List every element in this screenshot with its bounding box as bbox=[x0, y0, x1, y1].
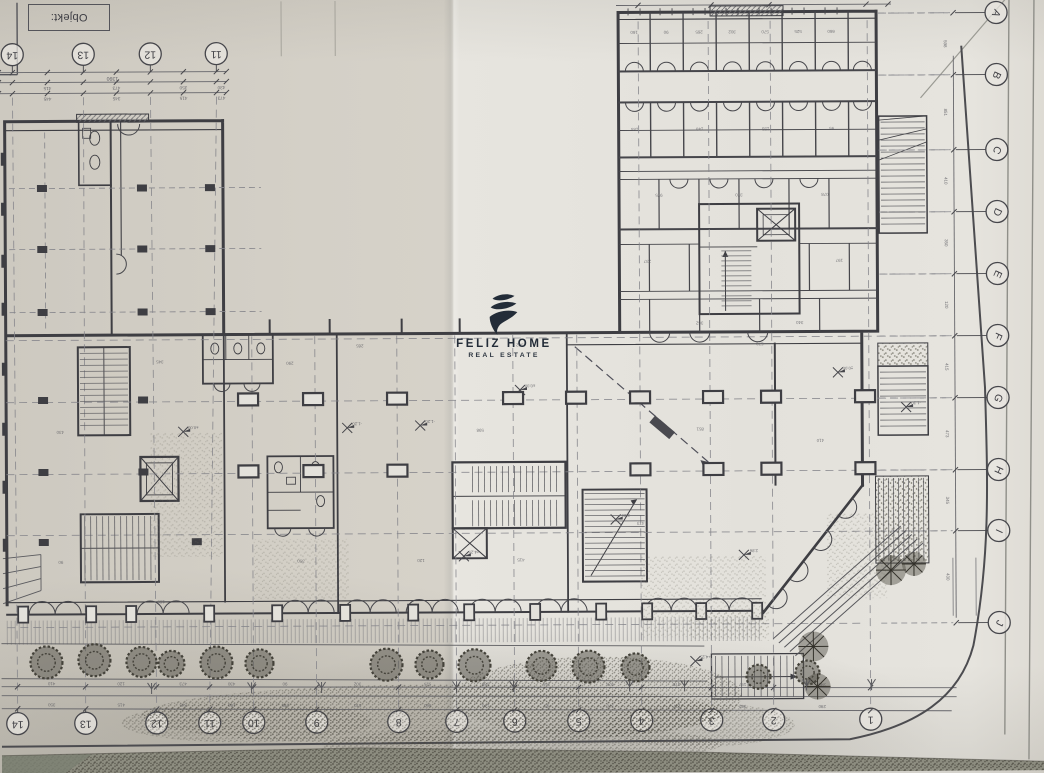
svg-text:237: 237 bbox=[643, 259, 651, 264]
svg-text:120: 120 bbox=[944, 301, 949, 309]
grid-bubble-I: I bbox=[988, 519, 1010, 541]
grid-bubble-J: J bbox=[988, 611, 1010, 633]
grid-bubble-G: G bbox=[987, 386, 1009, 408]
level-marker: ±0.00 bbox=[833, 366, 853, 378]
svg-text:197: 197 bbox=[835, 258, 843, 263]
svg-text:11: 11 bbox=[211, 48, 222, 60]
svg-text:±0.00: ±0.00 bbox=[842, 366, 853, 371]
grid-bubble-13: 13 bbox=[72, 43, 94, 65]
svg-text:473: 473 bbox=[217, 96, 225, 101]
grid-bubble-12: 12 bbox=[139, 43, 161, 65]
svg-text:14: 14 bbox=[6, 49, 18, 61]
svg-text:120: 120 bbox=[417, 558, 425, 563]
svg-text:570: 570 bbox=[761, 29, 769, 34]
palm-tree-symbol bbox=[902, 552, 926, 576]
svg-text:2.86: 2.86 bbox=[749, 548, 758, 553]
svg-text:975: 975 bbox=[655, 193, 663, 198]
level-marker: -1.20 bbox=[342, 421, 362, 433]
grid-bubble-14: 14 bbox=[1, 44, 23, 66]
svg-text:525: 525 bbox=[794, 29, 802, 34]
svg-text:415: 415 bbox=[117, 702, 125, 707]
grid-bubble-D: D bbox=[986, 200, 1008, 222]
svg-text:598: 598 bbox=[476, 428, 484, 433]
svg-text:415: 415 bbox=[179, 96, 187, 101]
svg-text:+4.25: +4.25 bbox=[699, 655, 710, 660]
svg-text:-1.20: -1.20 bbox=[352, 421, 362, 426]
tree-symbol bbox=[126, 647, 156, 677]
svg-text:140: 140 bbox=[695, 127, 703, 132]
svg-text:302: 302 bbox=[728, 29, 736, 34]
svg-text:120: 120 bbox=[117, 681, 125, 686]
svg-text:-1.20: -1.20 bbox=[425, 419, 435, 424]
floor-plan-scan: 141312111413121110987654321ABCDEFGHIJ139… bbox=[0, 0, 1044, 773]
svg-text:851: 851 bbox=[943, 109, 948, 117]
svg-text:160: 160 bbox=[630, 30, 638, 35]
svg-text:410: 410 bbox=[47, 681, 55, 686]
svg-text:430: 430 bbox=[227, 681, 235, 686]
grid-bubble-A: A bbox=[985, 1, 1007, 23]
svg-text:078: 078 bbox=[821, 192, 829, 197]
svg-text:±0.00: ±0.00 bbox=[524, 383, 535, 388]
svg-text:410: 410 bbox=[943, 177, 948, 185]
grid-bubble-11: 11 bbox=[205, 43, 227, 65]
upper-rooms-walls bbox=[618, 7, 878, 332]
svg-text:1: 1 bbox=[868, 714, 874, 726]
svg-text:345: 345 bbox=[112, 96, 120, 101]
tree-symbol bbox=[30, 646, 62, 678]
svg-text:-1.20: -1.20 bbox=[911, 400, 921, 405]
plan-drawing: 141312111413121110987654321ABCDEFGHIJ139… bbox=[0, 0, 1044, 773]
svg-text:362: 362 bbox=[695, 321, 703, 326]
svg-text:14: 14 bbox=[12, 718, 24, 730]
svg-text:410: 410 bbox=[816, 438, 824, 443]
svg-text:430: 430 bbox=[945, 573, 950, 581]
level-marker: +4.25 bbox=[459, 550, 479, 562]
dimension-chains: 1390415473350430445345415473410350120415… bbox=[0, 1, 951, 718]
svg-text:265: 265 bbox=[695, 30, 703, 35]
palm-tree-symbol bbox=[805, 673, 831, 699]
svg-text:90: 90 bbox=[663, 30, 668, 35]
svg-text:13: 13 bbox=[77, 49, 89, 61]
svg-text:197: 197 bbox=[738, 682, 746, 687]
svg-text:95: 95 bbox=[829, 126, 834, 131]
level-marker: 2.86 bbox=[611, 513, 630, 525]
svg-text:340: 340 bbox=[795, 320, 803, 325]
svg-text:415: 415 bbox=[517, 557, 525, 562]
building-walls bbox=[4, 5, 879, 617]
svg-text:473: 473 bbox=[112, 86, 120, 91]
tree-symbol bbox=[78, 644, 110, 676]
title-block: Objekt: bbox=[28, 4, 110, 31]
svg-text:+4.25: +4.25 bbox=[468, 550, 479, 555]
tree-symbol bbox=[370, 649, 402, 681]
svg-text:345: 345 bbox=[945, 497, 950, 505]
svg-text:265: 265 bbox=[356, 343, 364, 348]
svg-text:350: 350 bbox=[47, 702, 55, 707]
svg-text:1390: 1390 bbox=[106, 75, 118, 81]
svg-text:598: 598 bbox=[943, 40, 948, 48]
svg-text:290: 290 bbox=[286, 361, 294, 366]
object-label: Objekt: bbox=[51, 12, 88, 24]
svg-text:290: 290 bbox=[818, 704, 826, 709]
svg-text:851: 851 bbox=[696, 427, 704, 432]
svg-text:415: 415 bbox=[944, 363, 949, 371]
tree-symbol bbox=[746, 665, 770, 689]
tree-symbol bbox=[245, 649, 273, 677]
svg-text:350: 350 bbox=[944, 239, 949, 247]
grid-bubble-C: C bbox=[986, 138, 1008, 160]
section-line bbox=[575, 346, 709, 468]
svg-text:12: 12 bbox=[144, 48, 156, 60]
tree-symbol bbox=[200, 647, 232, 679]
svg-text:415: 415 bbox=[43, 86, 51, 91]
svg-text:13: 13 bbox=[80, 718, 92, 730]
svg-text:350: 350 bbox=[179, 85, 187, 90]
svg-text:90: 90 bbox=[58, 560, 63, 565]
svg-text:90: 90 bbox=[282, 682, 287, 687]
level-marker: -1.20 bbox=[415, 419, 435, 431]
grid-bubble-13: 13 bbox=[75, 712, 97, 734]
svg-text:155: 155 bbox=[761, 126, 769, 131]
svg-text:430: 430 bbox=[217, 85, 225, 90]
grid-bubble-1: 1 bbox=[860, 708, 882, 730]
grid-bubble-14: 14 bbox=[7, 713, 29, 735]
level-marker: +4.25 bbox=[690, 655, 710, 667]
grid-bubble-B: B bbox=[985, 63, 1007, 85]
svg-text:445: 445 bbox=[43, 96, 51, 101]
svg-text:345: 345 bbox=[156, 359, 164, 364]
svg-text:302: 302 bbox=[516, 342, 524, 347]
svg-text:473: 473 bbox=[179, 681, 187, 686]
svg-text:430: 430 bbox=[56, 430, 64, 435]
svg-text:660: 660 bbox=[827, 29, 835, 34]
grid-bubble-F: F bbox=[987, 324, 1009, 346]
svg-text:185: 185 bbox=[630, 127, 638, 132]
grid-bubble-E: E bbox=[986, 262, 1008, 284]
svg-text:±0.00: ±0.00 bbox=[187, 425, 198, 430]
tree-symbol bbox=[415, 650, 443, 678]
svg-text:473: 473 bbox=[945, 430, 950, 438]
grid-bubble-H: H bbox=[987, 458, 1009, 480]
palm-tree-symbol bbox=[798, 631, 828, 661]
svg-text:473: 473 bbox=[636, 521, 644, 526]
svg-text:370: 370 bbox=[735, 192, 743, 197]
tree-symbol bbox=[158, 651, 184, 677]
